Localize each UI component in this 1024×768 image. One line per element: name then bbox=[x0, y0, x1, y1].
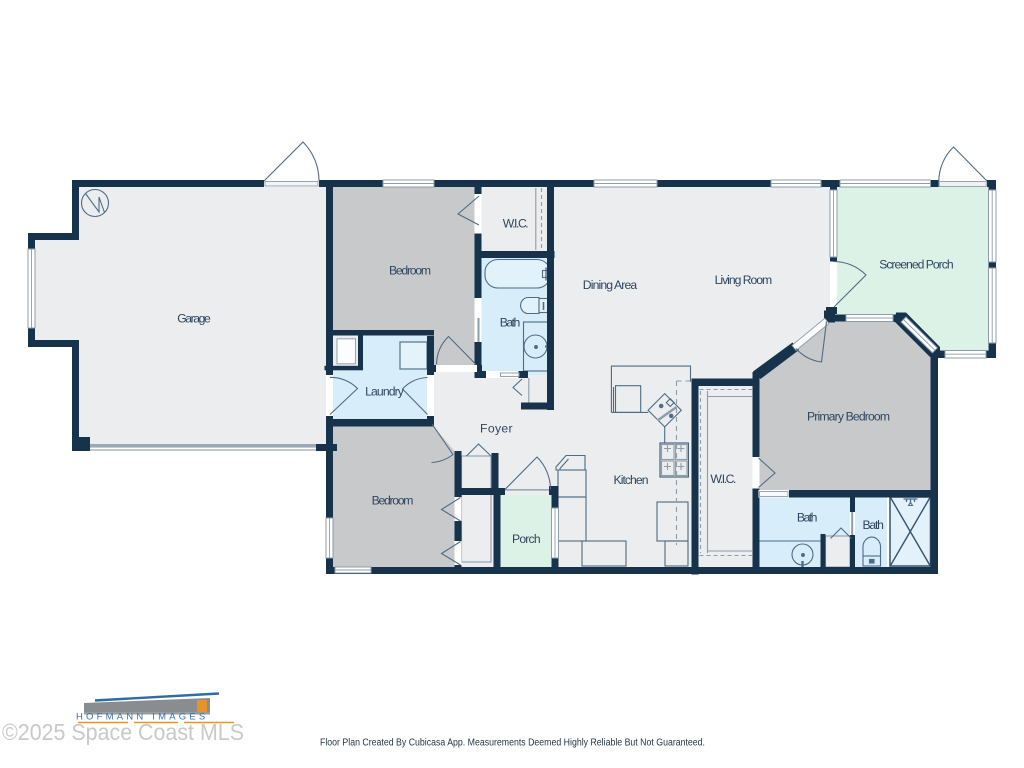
svg-text:Garage: Garage bbox=[177, 311, 211, 325]
svg-text:Bedroom: Bedroom bbox=[372, 494, 414, 508]
svg-text:©2025 Space Coast MLS: ©2025 Space Coast MLS bbox=[2, 719, 244, 745]
svg-text:Bath: Bath bbox=[797, 511, 818, 525]
svg-text:Foyer: Foyer bbox=[480, 422, 513, 436]
svg-text:Kitchen: Kitchen bbox=[614, 473, 649, 487]
svg-text:Primary Bedroom: Primary Bedroom bbox=[807, 410, 890, 424]
svg-text:Living Room: Living Room bbox=[715, 273, 773, 287]
svg-text:Bedroom: Bedroom bbox=[389, 263, 431, 277]
svg-text:Bath: Bath bbox=[500, 315, 521, 329]
svg-text:W.I.C.: W.I.C. bbox=[710, 472, 736, 486]
svg-text:Screened Porch: Screened Porch bbox=[879, 257, 953, 271]
svg-text:Bath: Bath bbox=[862, 518, 884, 532]
svg-text:Porch: Porch bbox=[512, 532, 541, 546]
svg-text:W.I.C.: W.I.C. bbox=[503, 217, 529, 231]
svg-text:Floor Plan Created By Cubicasa: Floor Plan Created By Cubicasa App. Meas… bbox=[320, 738, 705, 749]
svg-text:Dining Area: Dining Area bbox=[583, 278, 638, 292]
svg-text:Laundry: Laundry bbox=[365, 385, 405, 399]
